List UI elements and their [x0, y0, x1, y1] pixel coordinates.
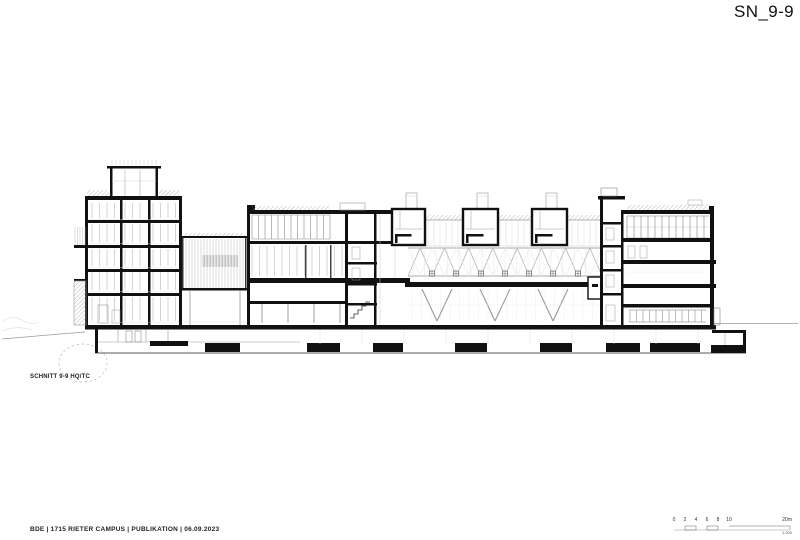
roof-truss — [408, 248, 602, 276]
mid-upper-floor-glazing — [252, 246, 342, 276]
mid-block-section — [247, 203, 410, 325]
drawing-caption: SCHNITT 9-9 HQ/TC — [30, 374, 90, 380]
right-lower-glazing — [630, 310, 702, 322]
left-tower-section — [74, 160, 182, 325]
hall-truss-section — [405, 215, 602, 321]
scale-bar-graphic — [672, 523, 792, 532]
roof-monitor — [392, 193, 425, 245]
scale-bar: 0 2 4 6 8 10 20m 1:200 — [672, 517, 792, 537]
section-drawing — [0, 0, 800, 540]
roof-monitor — [532, 193, 567, 245]
link-bridge-section — [182, 233, 247, 325]
mid-clerestory-glazing — [252, 215, 330, 239]
drawing-sheet: SN_9-9 — [0, 0, 800, 540]
basement-foundations — [85, 325, 746, 353]
roof-monitor — [463, 193, 498, 245]
roof-monitors — [392, 193, 567, 245]
footer-project-info: BDE | 1715 RIETER CAMPUS | PUBLIKATION |… — [30, 526, 219, 533]
right-block-section — [598, 188, 720, 325]
